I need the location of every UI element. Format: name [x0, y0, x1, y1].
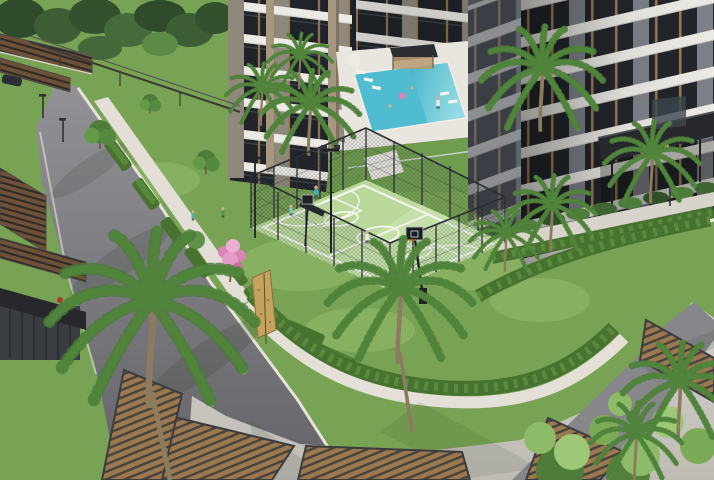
render-image [0, 0, 714, 480]
pool-float [399, 93, 406, 100]
kiosk-umbrella [57, 297, 63, 303]
pool-cabana [390, 44, 438, 70]
scene-canvas [0, 0, 714, 480]
pool-umbrella [348, 54, 361, 67]
wood-deck [298, 446, 470, 480]
